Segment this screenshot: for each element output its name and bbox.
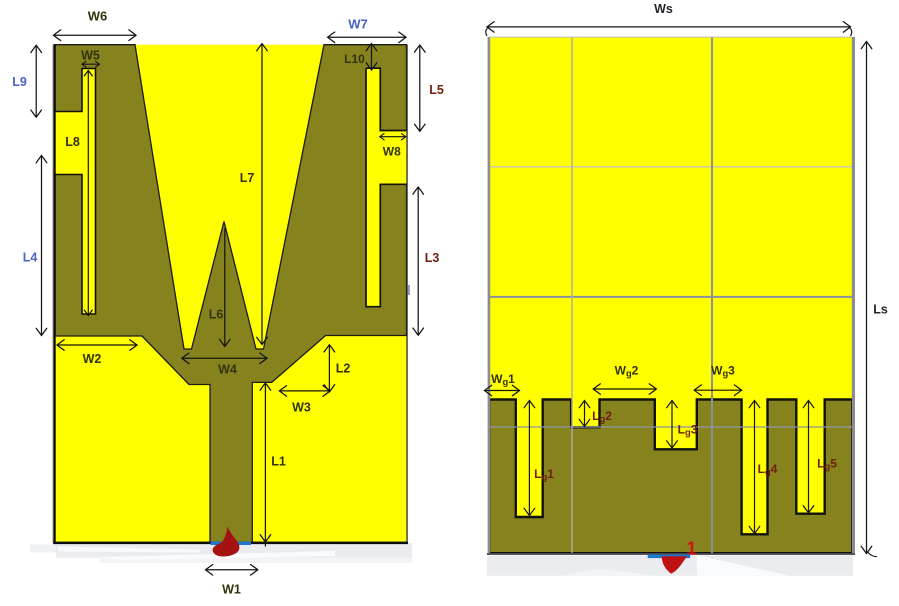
svg-text:L9: L9 [12,75,27,89]
svg-text:L6: L6 [209,307,224,321]
svg-text:L1: L1 [271,454,286,468]
svg-text:L10: L10 [344,52,365,66]
svg-text:L4: L4 [23,251,38,265]
svg-text:W4: W4 [218,362,237,376]
svg-text:W7: W7 [348,16,368,31]
svg-text:W5: W5 [81,49,100,63]
svg-text:L3: L3 [425,251,440,265]
svg-text:W2: W2 [83,352,102,366]
svg-text:L5: L5 [429,83,444,97]
svg-text:L8: L8 [65,135,80,149]
svg-text:L7: L7 [240,171,255,185]
svg-text:Ls: Ls [873,302,888,316]
svg-text:W1: W1 [222,582,241,596]
svg-text:L2: L2 [336,361,351,375]
svg-text:W8: W8 [383,144,401,158]
svg-text:Ws: Ws [654,2,673,16]
svg-text:W6: W6 [88,8,108,23]
svg-text:W3: W3 [292,401,311,415]
svg-text:1: 1 [686,538,696,559]
